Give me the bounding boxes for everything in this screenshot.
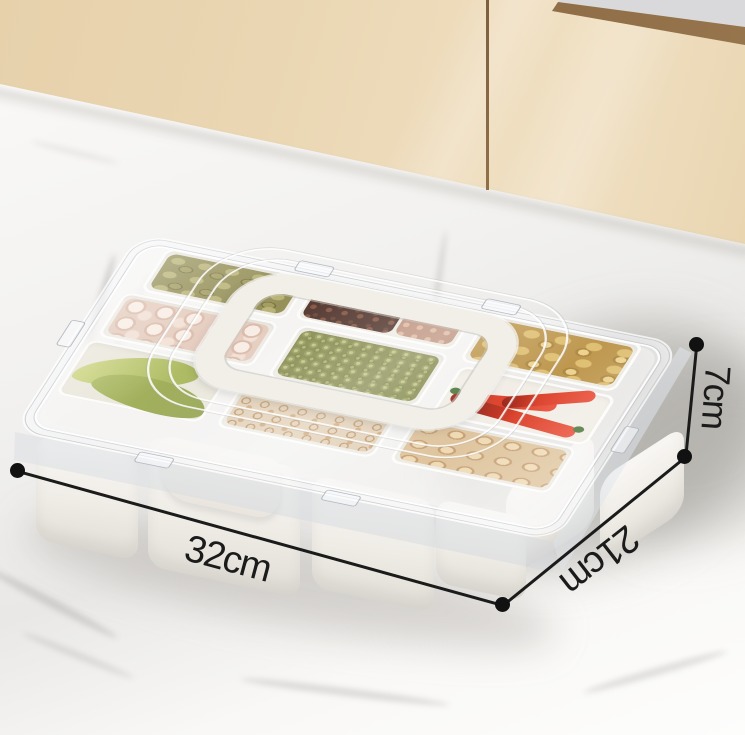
height-label: 7cm [693,364,739,430]
dimension-endpoint-dot [10,463,25,478]
marble-vein [31,139,120,166]
product-photo-scene: 32cm 21cm 7cm [0,0,745,735]
marble-vein [240,675,449,709]
marble-vein [582,647,728,696]
dimension-endpoint-dot [689,337,704,352]
cabinet-door-seam [486,0,489,190]
dimension-endpoint-dot [677,449,692,464]
dimension-endpoint-dot [495,597,510,612]
marble-vein [21,630,135,681]
